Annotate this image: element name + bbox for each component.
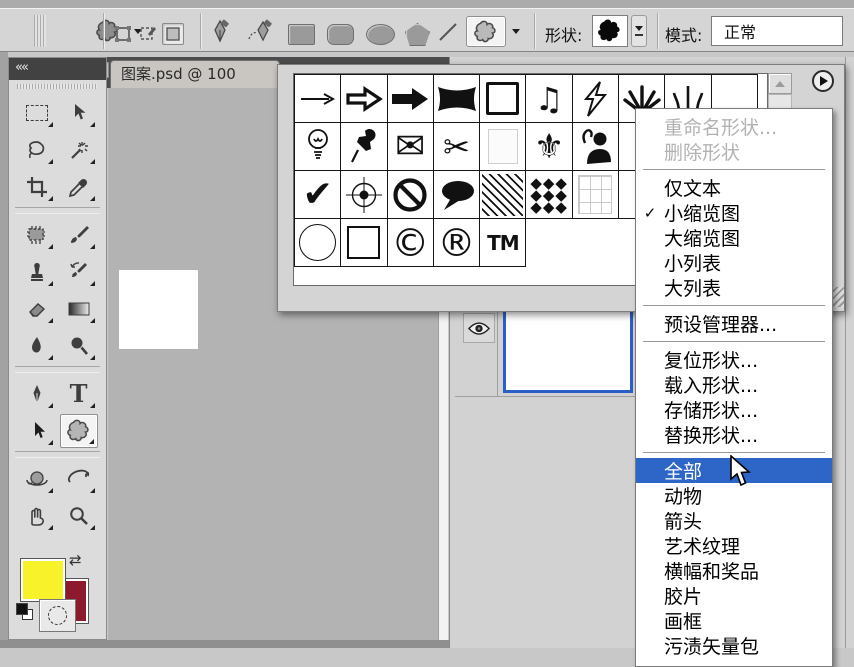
- shape-diamond-grid[interactable]: ◆◆◆◆◆◆◆◆◆: [525, 170, 572, 219]
- tool-hand[interactable]: [18, 499, 56, 533]
- dropdown-dash-icon: [635, 34, 643, 36]
- menu-item-frames[interactable]: 画框: [636, 608, 832, 633]
- menu-item-label: 大缩览图: [664, 224, 740, 251]
- shape-arrow-open[interactable]: [340, 74, 387, 123]
- menu-item-label: 胶片: [664, 582, 702, 609]
- shape-blank-square[interactable]: [479, 122, 526, 171]
- shape-label: 形状:: [545, 22, 582, 46]
- foreground-color-swatch[interactable]: [21, 559, 65, 601]
- shape-picker-context-menu: 重命名形状...删除形状仅文本✓小缩览图大缩览图小列表大列表预设管理器...复位…: [635, 108, 833, 667]
- tool-zoom[interactable]: [60, 499, 98, 533]
- tool-orbit-3d[interactable]: [60, 462, 98, 496]
- tool-path-selection[interactable]: [18, 414, 56, 448]
- menu-item-label: 小缩览图: [664, 199, 740, 226]
- toolbox-tools: T: [9, 94, 106, 534]
- shape-speech-bubble[interactable]: [433, 170, 480, 219]
- menu-item-label: 载入形状...: [664, 371, 758, 398]
- tool-clone-stamp[interactable]: [18, 255, 56, 289]
- menu-item-arrows[interactable]: 箭头: [636, 508, 832, 533]
- shape-circle[interactable]: [294, 218, 341, 267]
- shape-picker-scroll-up-button[interactable]: [768, 73, 792, 94]
- shape-fleur-de-lis[interactable]: ⚜: [525, 122, 572, 171]
- rounded-rectangle-tool-button[interactable]: [327, 24, 354, 45]
- default-colors-icon[interactable]: [16, 603, 36, 623]
- toolbox: «« T ⇄: [8, 57, 107, 640]
- menu-item-film[interactable]: 胶片: [636, 583, 832, 608]
- eye-icon: [468, 321, 490, 336]
- fill-pixels-button[interactable]: [162, 23, 184, 45]
- separator: [534, 13, 535, 49]
- menu-item-label: 删除形状: [664, 138, 740, 165]
- menu-item-label: 小列表: [664, 249, 721, 276]
- pen-tool-button[interactable]: [206, 18, 234, 44]
- menu-item-animals[interactable]: 动物: [636, 483, 832, 508]
- shape-arrow-solid[interactable]: [387, 74, 434, 123]
- paths-button[interactable]: [137, 23, 159, 45]
- shape-diagonal-hatch[interactable]: [479, 170, 526, 219]
- tool-move[interactable]: [60, 96, 98, 130]
- shape-square[interactable]: [340, 218, 387, 267]
- tool-dodge[interactable]: [60, 329, 98, 363]
- mode-label: 模式:: [665, 22, 702, 46]
- menu-item-small-thumbnail[interactable]: ✓小缩览图: [636, 200, 832, 225]
- options-bar: 形状: 模式:: [0, 8, 854, 52]
- shape-frame[interactable]: [479, 74, 526, 123]
- layer-thumbnail[interactable]: [503, 309, 633, 393]
- line-tool-button[interactable]: [436, 20, 460, 44]
- menu-item-label: 污渍矢量包: [664, 632, 759, 659]
- tool-rotate-3d[interactable]: [18, 462, 56, 496]
- separator: [657, 13, 658, 49]
- menu-item-text-only[interactable]: 仅文本: [636, 175, 832, 200]
- swap-colors-icon[interactable]: ⇄: [69, 551, 82, 569]
- menu-item-rename-shape[interactable]: 重命名形状...: [636, 114, 832, 139]
- layers-row-divider: [455, 396, 635, 397]
- shape-lightning[interactable]: [572, 74, 619, 123]
- polygon-tool-button[interactable]: [405, 23, 430, 46]
- shape-preview-swatch[interactable]: [592, 15, 628, 47]
- menu-separator: [643, 305, 825, 306]
- canvas-white-square: [119, 270, 198, 349]
- tool-gradient[interactable]: [60, 292, 98, 326]
- shape-trademark[interactable]: TM: [479, 218, 526, 267]
- tool-crop[interactable]: [18, 170, 56, 204]
- menu-item-large-thumbnail[interactable]: 大缩览图: [636, 225, 832, 250]
- shape-checkmark[interactable]: ✔: [294, 170, 341, 219]
- menu-item-label: 仅文本: [664, 174, 721, 201]
- dropdown-arrow-icon: [635, 26, 643, 31]
- shape-dropdown-button[interactable]: [631, 15, 647, 47]
- menu-item-label: 替换形状...: [664, 421, 758, 448]
- menu-separator: [643, 169, 825, 170]
- window-left-edge: [0, 52, 8, 648]
- default-black-swatch: [16, 603, 28, 615]
- menu-separator: [643, 341, 825, 342]
- freeform-pen-icon: [246, 19, 276, 43]
- tool-blur[interactable]: [18, 329, 56, 363]
- menu-item-label: 箭头: [664, 507, 702, 534]
- shape-figure-note[interactable]: [572, 122, 619, 171]
- menu-item-load-shapes[interactable]: 载入形状...: [636, 372, 832, 397]
- panel-menu-button[interactable]: [812, 70, 834, 92]
- toolbox-separator: [15, 451, 100, 458]
- custom-shape-tool-button[interactable]: [466, 16, 506, 47]
- menu-item-save-shapes[interactable]: 存储形状...: [636, 397, 832, 422]
- menu-item-art-textures[interactable]: 艺术纹理: [636, 533, 832, 558]
- pen-icon: [208, 19, 232, 43]
- menu-item-label: 动物: [664, 482, 702, 509]
- toolbox-separator: [15, 207, 100, 214]
- menu-item-label: 大列表: [664, 274, 721, 301]
- custom-shape-icon: [596, 17, 624, 45]
- document-title: 图案.psd @ 100: [121, 65, 236, 83]
- layer-visibility-toggle[interactable]: [463, 313, 495, 343]
- separator: [200, 13, 201, 49]
- fill-pixels-icon: [166, 27, 180, 41]
- shape-pushpin[interactable]: [340, 122, 387, 171]
- paths-icon: [139, 25, 157, 43]
- tool-patch[interactable]: [18, 218, 56, 252]
- tool-eyedropper[interactable]: [60, 170, 98, 204]
- tool-brush[interactable]: [60, 218, 98, 252]
- menu-item-label: 存储形状...: [664, 396, 758, 423]
- scroll-up-arrow-icon: [775, 81, 785, 87]
- menu-item-preset-manager[interactable]: 预设管理器...: [636, 311, 832, 336]
- shape-no-symbol[interactable]: [387, 170, 434, 219]
- ellipse-tool-button[interactable]: [366, 24, 395, 45]
- shape-layers-button[interactable]: [112, 23, 134, 45]
- tool-eraser[interactable]: [18, 292, 56, 326]
- mode-input[interactable]: [711, 16, 843, 46]
- panel-menu-arrow-icon: [820, 76, 828, 86]
- shape-arrow-thin[interactable]: [294, 74, 341, 123]
- menu-item-label: 全部: [664, 457, 702, 484]
- tool-type[interactable]: T: [60, 377, 98, 411]
- menu-item-delete-shape[interactable]: 删除形状: [636, 139, 832, 164]
- check-icon: ✓: [636, 204, 664, 222]
- menu-item-label: 复位形状...: [664, 346, 758, 373]
- quick-mask-circle-icon: [48, 606, 67, 625]
- window-bottom-edge: [0, 640, 460, 648]
- menu-item-replace-shapes[interactable]: 替换形状...: [636, 422, 832, 447]
- menu-item-all[interactable]: 全部: [636, 458, 832, 483]
- rectangle-tool-button[interactable]: [288, 24, 315, 45]
- shape-music-notes[interactable]: ♫: [525, 74, 572, 123]
- shape-copyright[interactable]: ©: [387, 218, 434, 267]
- toolbox-collapse-button[interactable]: ««: [9, 58, 106, 80]
- toolbox-separator: [15, 366, 100, 373]
- line-icon: [437, 21, 459, 43]
- freeform-pen-button[interactable]: [244, 18, 278, 44]
- menu-item-small-list[interactable]: 小列表: [636, 250, 832, 275]
- shape-scissors[interactable]: ✂: [433, 122, 480, 171]
- custom-shape-icon: [473, 19, 499, 45]
- layers-column-divider: [497, 306, 498, 396]
- menu-item-large-list[interactable]: 大列表: [636, 275, 832, 300]
- menu-item-label: 横幅和奖品: [664, 557, 759, 584]
- menu-separator: [643, 452, 825, 453]
- shape-banner[interactable]: [433, 74, 480, 123]
- custom-shape-dropdown-arrow-icon[interactable]: [512, 29, 520, 34]
- menu-item-label: 艺术纹理: [664, 532, 740, 559]
- tool-history-brush[interactable]: [60, 255, 98, 289]
- separator: [103, 13, 104, 49]
- tool-lasso[interactable]: [18, 133, 56, 167]
- menu-item-label: 画框: [664, 607, 702, 634]
- shape-registration-target[interactable]: [340, 170, 387, 219]
- shape-light-bulb[interactable]: [294, 122, 341, 171]
- shape-envelope[interactable]: ✉: [387, 122, 434, 171]
- tool-magic-wand[interactable]: [60, 133, 98, 167]
- document-tab[interactable]: 图案.psd @ 100: [110, 60, 280, 88]
- menu-item-banners-awards[interactable]: 横幅和奖品: [636, 558, 832, 583]
- tool-custom-shape[interactable]: [60, 414, 98, 448]
- shape-light-grid[interactable]: [572, 170, 619, 219]
- menu-item-label: 预设管理器...: [664, 310, 777, 337]
- quick-mask-button[interactable]: [39, 599, 76, 632]
- menu-item-reset-shapes[interactable]: 复位形状...: [636, 347, 832, 372]
- menu-item-grime-vector-pack[interactable]: 污渍矢量包: [636, 633, 832, 658]
- shape-layers-icon: [114, 25, 132, 43]
- toolbox-grip[interactable]: [17, 84, 97, 89]
- options-bar-grip[interactable]: [34, 15, 46, 47]
- tool-pen[interactable]: [18, 377, 56, 411]
- tool-rectangular-marquee[interactable]: [18, 96, 56, 130]
- shape-registered[interactable]: ®: [433, 218, 480, 267]
- menu-item-label: 重命名形状...: [664, 113, 777, 140]
- window-top-edge: [0, 0, 854, 8]
- panel-right-edge: [845, 57, 846, 648]
